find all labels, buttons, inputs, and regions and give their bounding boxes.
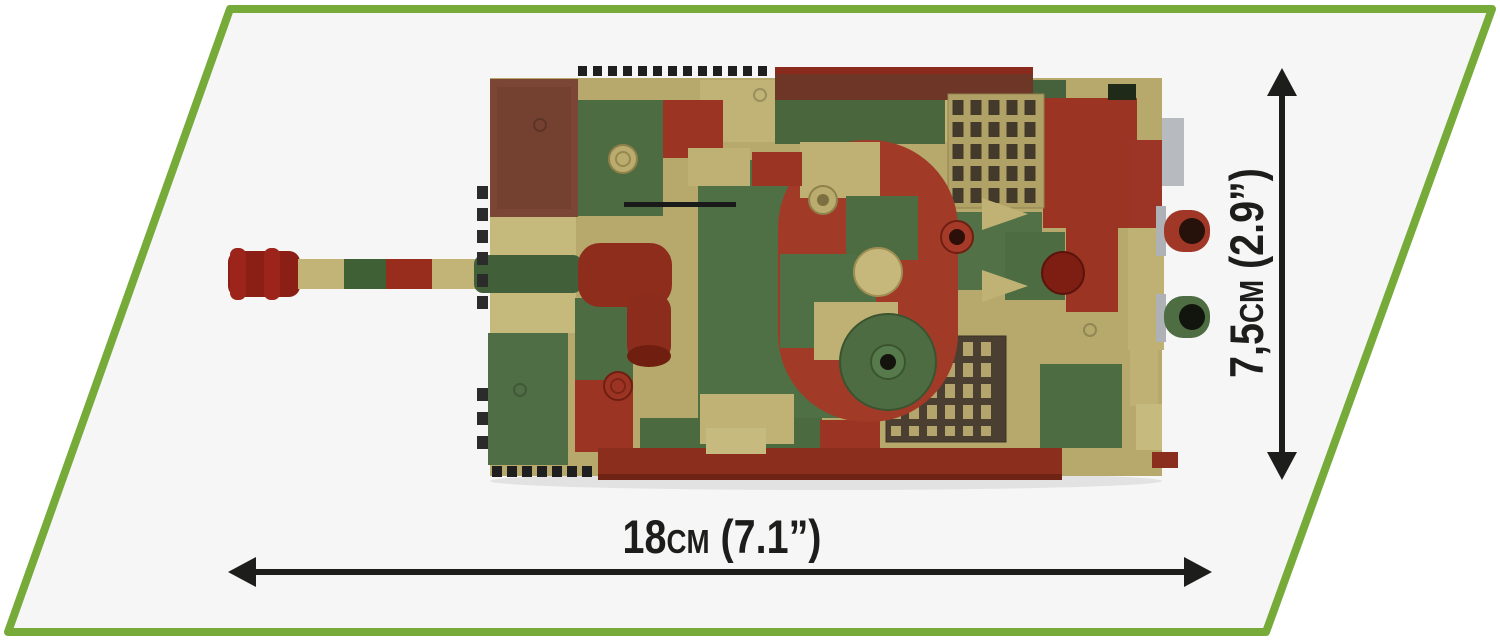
tan-logo-stud — [609, 145, 637, 173]
length-dimension-label: 18cm (7.1”) — [623, 512, 822, 562]
red-logo-stud — [604, 372, 632, 400]
gray-bracket — [1162, 118, 1184, 186]
front-plate-texture — [497, 87, 571, 209]
antenna — [624, 202, 736, 207]
width-dimension-label: 7,5cm (2.9”) — [1222, 168, 1272, 378]
barrel-base — [474, 255, 582, 293]
fuel-cap-circle — [1042, 252, 1084, 294]
top-hatch-opening — [1108, 84, 1136, 100]
product-dimensions-figure: 18cm (7.1”) 7,5cm (2.9”) — [0, 0, 1500, 642]
track-studs-bottom — [492, 466, 592, 477]
bottom-track-edge — [598, 474, 1062, 480]
loader-hatch-circle — [854, 248, 902, 296]
engine-grille-upper — [948, 94, 1044, 208]
top-track-edge — [775, 67, 1033, 74]
